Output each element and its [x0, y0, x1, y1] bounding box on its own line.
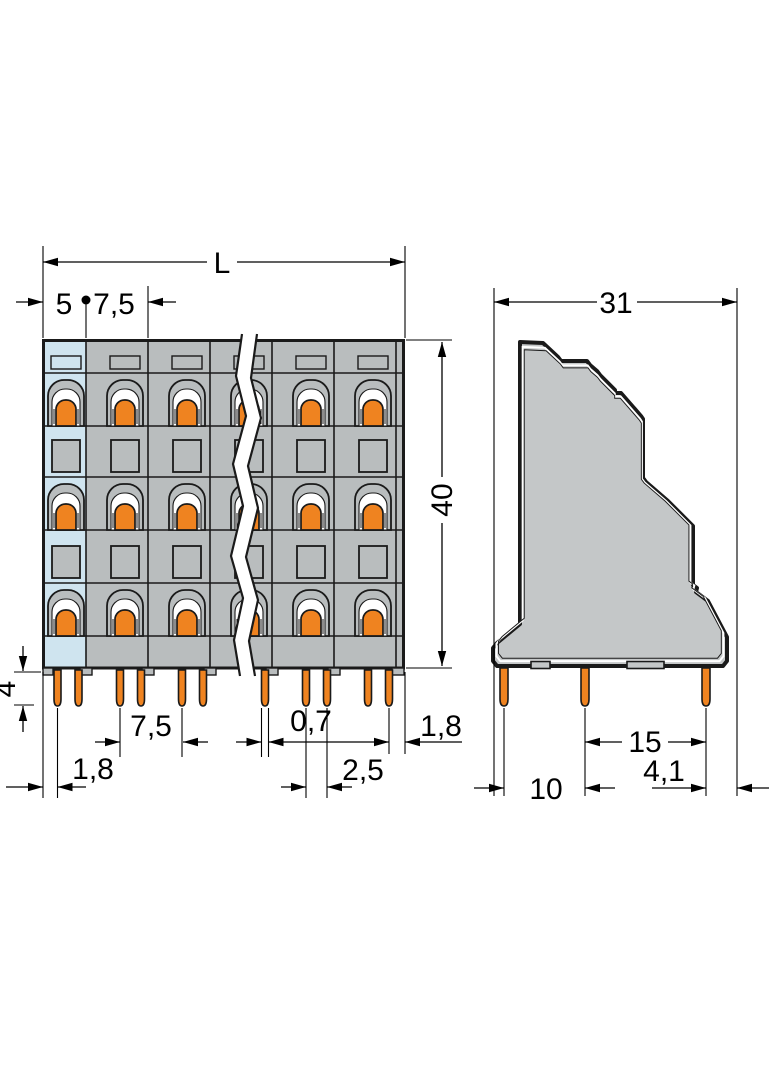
- foot-notch: [43, 668, 53, 675]
- dim-body-height-label: 40: [426, 483, 459, 516]
- dimension-arrowhead: [691, 738, 706, 746]
- dim-pin-pair-spacing-label: 2,5: [342, 754, 384, 787]
- dim-overall-depth-label: 31: [599, 287, 632, 320]
- dimension-arrowhead: [148, 298, 163, 306]
- clamp-spring-orange: [56, 610, 76, 636]
- dimension-arrowhead: [58, 783, 73, 791]
- solder-pin: [138, 670, 145, 706]
- conductor-opening: [52, 546, 80, 578]
- dimension-arrowhead: [183, 738, 198, 746]
- conductor-opening: [111, 440, 139, 472]
- conductor-opening: [359, 440, 387, 472]
- conductor-opening: [111, 546, 139, 578]
- dimension-arrowhead: [374, 738, 389, 746]
- clamp-spring-orange: [301, 504, 321, 530]
- dimension-arrowhead: [291, 783, 306, 791]
- side-view: [493, 342, 727, 706]
- solder-pin: [365, 670, 372, 706]
- dimension-arrowhead: [327, 783, 342, 791]
- conductor-opening: [52, 440, 80, 472]
- dim-first-pin-offset-label: 1,8: [72, 753, 114, 786]
- solder-pin: [54, 670, 61, 706]
- dimension-arrowhead: [691, 784, 706, 792]
- dim-pin-width-label: 0,7: [290, 705, 332, 738]
- front-view: [43, 334, 404, 706]
- clamp-spring-orange: [301, 400, 321, 426]
- clamp-spring-orange: [363, 504, 383, 530]
- dim-pin-span-front-label: 10: [529, 773, 562, 806]
- clamp-spring-orange: [363, 610, 383, 636]
- dimension-arrowhead: [737, 784, 752, 792]
- dimension-arrowhead: [247, 738, 262, 746]
- dimension-arrowhead: [489, 784, 504, 792]
- clamp-spring-orange: [177, 400, 197, 426]
- solder-pin: [702, 668, 710, 706]
- dimension-arrowhead: [28, 298, 43, 306]
- clamp-spring-orange: [56, 504, 76, 530]
- solder-pin: [386, 670, 393, 706]
- solder-pin: [179, 670, 186, 706]
- dimension-point-dot: [82, 296, 91, 305]
- dimension-arrowhead: [105, 738, 120, 746]
- dimension-arrowhead: [390, 258, 405, 266]
- dim-pin-protrusion-label: 4: [0, 681, 22, 698]
- technical-drawing-canvas: L 5 7,5 40 4 7,5 0,7 1,8 1,8 2,5 31 15 4…: [0, 0, 784, 1066]
- dim-last-pin-offset-label: 1,8: [420, 710, 462, 743]
- base-step: [627, 662, 664, 669]
- dim-overall-length-label: L: [214, 247, 231, 280]
- clamp-spring-orange: [301, 610, 321, 636]
- clamp-spring-orange: [115, 504, 135, 530]
- dimension-arrowhead: [585, 738, 600, 746]
- dimension-arrowhead: [405, 738, 420, 746]
- dimension-arrowhead: [28, 783, 43, 791]
- dim-end-section-width-label: 5: [56, 288, 73, 321]
- dimension-arrowhead: [494, 298, 509, 306]
- conductor-opening: [173, 546, 201, 578]
- dimension-arrowhead: [19, 656, 27, 671]
- clamp-spring-orange: [177, 504, 197, 530]
- dimension-arrowhead: [438, 342, 446, 357]
- base-step: [531, 662, 550, 669]
- dimension-arrowhead: [43, 258, 58, 266]
- dimension-arrowhead: [19, 706, 27, 721]
- dimension-arrowhead: [269, 738, 284, 746]
- clamp-spring-orange: [115, 400, 135, 426]
- solder-pin: [500, 668, 508, 706]
- solder-pin: [262, 670, 269, 706]
- conductor-opening: [359, 546, 387, 578]
- conductor-opening: [173, 440, 201, 472]
- conductor-opening: [297, 546, 325, 578]
- clamp-spring-orange: [115, 610, 135, 636]
- terminal-block-dimensional-drawing: L 5 7,5 40 4 7,5 0,7 1,8 1,8 2,5 31 15 4…: [0, 0, 784, 1066]
- dimension-arrowhead: [722, 298, 737, 306]
- solder-pin: [324, 670, 331, 706]
- clamp-spring-orange: [177, 610, 197, 636]
- foot-notch: [392, 668, 404, 675]
- solder-pin: [303, 670, 310, 706]
- clamp-spring-orange: [56, 400, 76, 426]
- clamp-spring-orange: [363, 400, 383, 426]
- solder-pin: [200, 670, 207, 706]
- dim-pole-pitch-top-label: 7,5: [93, 288, 135, 321]
- solder-pin: [117, 670, 124, 706]
- solder-pin: [75, 670, 82, 706]
- dimension-arrowhead: [585, 784, 600, 792]
- dimension-arrowhead: [438, 651, 446, 666]
- dim-pole-pitch-bottom-label: 7,5: [130, 710, 172, 743]
- conductor-opening: [297, 440, 325, 472]
- dim-last-pin-to-edge-label: 4,1: [643, 755, 685, 788]
- solder-pin: [581, 668, 589, 706]
